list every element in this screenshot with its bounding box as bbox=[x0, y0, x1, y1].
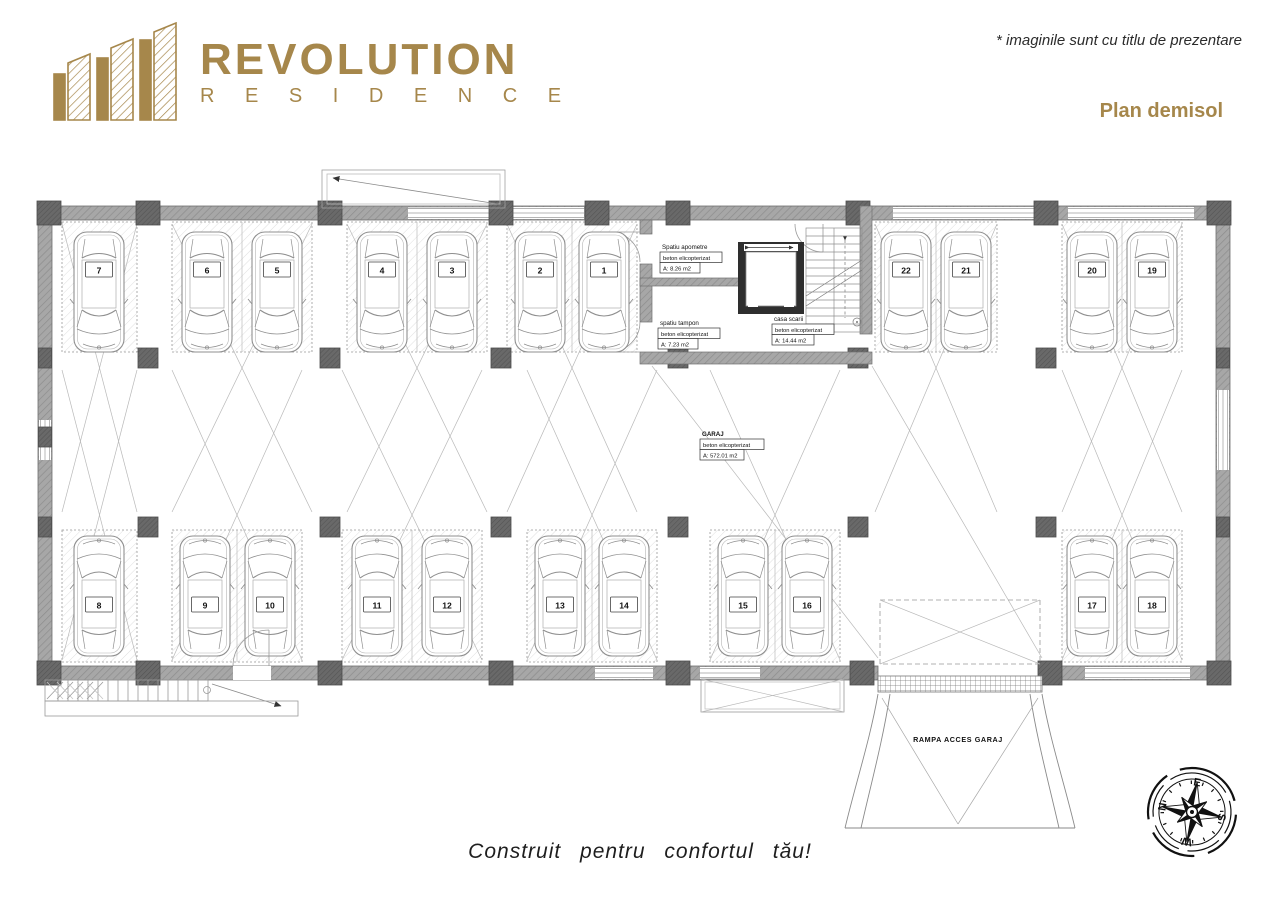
floor-plan-drawing: 76543212221201989101112131415161718 Spat… bbox=[0, 0, 1280, 905]
parking-spot-12: 12 bbox=[418, 536, 476, 656]
column bbox=[1217, 348, 1230, 368]
parking-spot-10: 10 bbox=[241, 536, 299, 656]
svg-text:spatiu tampon: spatiu tampon bbox=[660, 320, 699, 327]
column bbox=[136, 201, 160, 225]
column bbox=[39, 427, 52, 447]
spot-number: 21 bbox=[961, 266, 971, 276]
column bbox=[320, 348, 340, 368]
spot-number: 18 bbox=[1147, 601, 1157, 611]
spot-number: 14 bbox=[619, 601, 629, 611]
spot-number: 16 bbox=[802, 601, 812, 611]
spot-number: 17 bbox=[1087, 601, 1097, 611]
spot-number: 13 bbox=[555, 601, 565, 611]
parking-spot-2: 2 bbox=[511, 232, 569, 352]
compass-n: N bbox=[1156, 802, 1169, 812]
parking-spot-14: 14 bbox=[595, 536, 653, 656]
garage-ramp: RAMPA ACCES GARAJ bbox=[845, 600, 1075, 828]
ramp-label: RAMPA ACCES GARAJ bbox=[913, 735, 1003, 744]
column bbox=[848, 517, 868, 537]
svg-text:GARAJ: GARAJ bbox=[702, 431, 724, 438]
spot-number: 3 bbox=[450, 266, 455, 276]
column bbox=[850, 661, 874, 685]
spot-number: 2 bbox=[538, 266, 543, 276]
column bbox=[1207, 201, 1231, 225]
parking-spot-13: 13 bbox=[531, 536, 589, 656]
svg-text:beton elicopterizat: beton elicopterizat bbox=[775, 328, 822, 334]
compass-e: E bbox=[1192, 776, 1201, 789]
parking-spot-9: 9 bbox=[176, 536, 234, 656]
svg-text:Spatiu apometre: Spatiu apometre bbox=[662, 244, 708, 251]
column bbox=[37, 201, 61, 225]
svg-text:A: 572.01 m2: A: 572.01 m2 bbox=[703, 454, 737, 460]
svg-text:casa scarii: casa scarii bbox=[774, 316, 803, 323]
spot-number: 6 bbox=[205, 266, 210, 276]
spot-number: 15 bbox=[738, 601, 748, 611]
column bbox=[1207, 661, 1231, 685]
svg-text:beton elicopterizat: beton elicopterizat bbox=[703, 443, 750, 449]
column bbox=[1036, 348, 1056, 368]
staircase bbox=[806, 228, 862, 332]
parking-spot-16: 16 bbox=[778, 536, 836, 656]
column bbox=[666, 201, 690, 225]
column bbox=[37, 661, 61, 685]
parking-spot-8: 8 bbox=[70, 536, 128, 656]
spot-number: 22 bbox=[901, 266, 911, 276]
spot-number: 8 bbox=[97, 601, 102, 611]
column bbox=[1034, 201, 1058, 225]
parking-spot-19: 19 bbox=[1123, 232, 1181, 352]
column bbox=[491, 517, 511, 537]
column bbox=[489, 661, 513, 685]
parking-spot-15: 15 bbox=[714, 536, 772, 656]
spot-number: 20 bbox=[1087, 266, 1097, 276]
column bbox=[318, 661, 342, 685]
label-spatiu-apometre: Spatiu apometre beton elicopterizat A: 8… bbox=[660, 244, 722, 273]
spot-number: 11 bbox=[372, 601, 381, 611]
parking-spot-5: 5 bbox=[248, 232, 306, 352]
spot-number: 7 bbox=[97, 266, 102, 276]
column bbox=[668, 517, 688, 537]
column bbox=[138, 348, 158, 368]
spot-number: 9 bbox=[203, 601, 208, 611]
tagline: Construit pentru confortul tău! bbox=[0, 840, 1280, 864]
spot-number: 12 bbox=[442, 601, 452, 611]
column bbox=[138, 517, 158, 537]
spot-number: 19 bbox=[1147, 266, 1157, 276]
svg-text:beton elicopterizat: beton elicopterizat bbox=[663, 256, 710, 262]
parking-spot-3: 3 bbox=[423, 232, 481, 352]
compass-s: S bbox=[1215, 812, 1228, 821]
parking-spot-18: 18 bbox=[1123, 536, 1181, 656]
spot-number: 4 bbox=[380, 266, 385, 276]
svg-text:A: 7.23 m2: A: 7.23 m2 bbox=[661, 343, 689, 349]
svg-text:A: 14.44 m2: A: 14.44 m2 bbox=[775, 339, 806, 345]
column bbox=[39, 517, 52, 537]
spot-number: 5 bbox=[275, 266, 280, 276]
exterior-stair bbox=[45, 680, 298, 716]
parking-spot-6: 6 bbox=[178, 232, 236, 352]
label-garaj: GARAJ beton elicopterizat A: 572.01 m2 bbox=[700, 431, 764, 460]
svg-text:beton elicopterizat: beton elicopterizat bbox=[661, 332, 708, 338]
label-spatiu-tampon: spatiu tampon beton elicopterizat A: 7.2… bbox=[658, 320, 720, 349]
column bbox=[491, 348, 511, 368]
spot-number: 10 bbox=[265, 601, 275, 611]
parking-spot-22: 22 bbox=[877, 232, 935, 352]
column bbox=[489, 201, 513, 225]
stair-core bbox=[610, 206, 872, 364]
svg-text:A: 8.26 m2: A: 8.26 m2 bbox=[663, 267, 691, 273]
parking-spot-21: 21 bbox=[937, 232, 995, 352]
parking-spot-4: 4 bbox=[353, 232, 411, 352]
parking-spot-1: 1 bbox=[575, 232, 633, 352]
floor-plan-page: REVOLUTION R E S I D E N C E * imaginile… bbox=[0, 0, 1280, 905]
elevator bbox=[738, 242, 804, 314]
column bbox=[666, 661, 690, 685]
column bbox=[1217, 517, 1230, 537]
parking-spot-17: 17 bbox=[1063, 536, 1121, 656]
parking-spot-11: 11 bbox=[348, 536, 406, 656]
column bbox=[585, 201, 609, 225]
column bbox=[1036, 517, 1056, 537]
parking-spot-7: 7 bbox=[70, 232, 128, 352]
label-casa-scarii: casa scarii beton elicopterizat A: 14.44… bbox=[772, 316, 834, 345]
column bbox=[39, 348, 52, 368]
spot-number: 1 bbox=[602, 266, 607, 276]
column bbox=[320, 517, 340, 537]
parking-spot-20: 20 bbox=[1063, 232, 1121, 352]
